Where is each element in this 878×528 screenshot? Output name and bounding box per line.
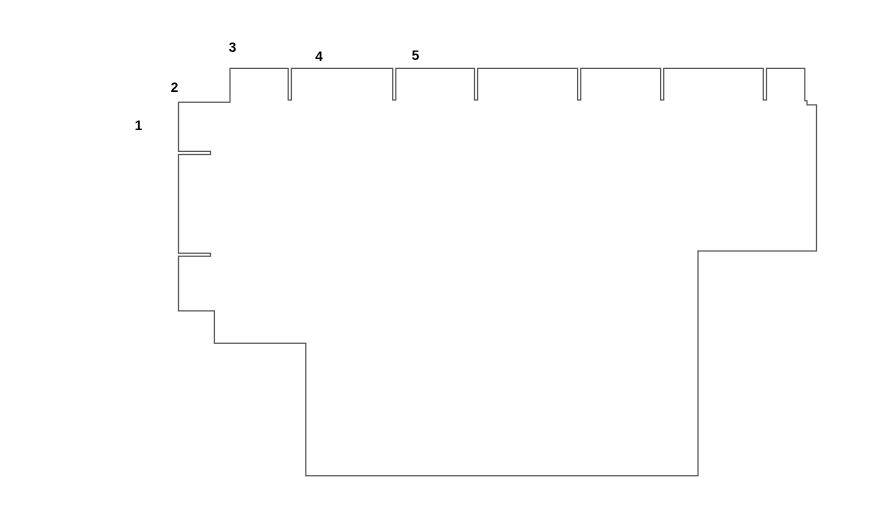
- svg-text:4: 4: [315, 49, 323, 64]
- svg-text:2: 2: [171, 80, 179, 95]
- svg-text:5: 5: [412, 48, 420, 63]
- svg-text:3: 3: [229, 40, 237, 55]
- svg-text:1: 1: [135, 118, 143, 133]
